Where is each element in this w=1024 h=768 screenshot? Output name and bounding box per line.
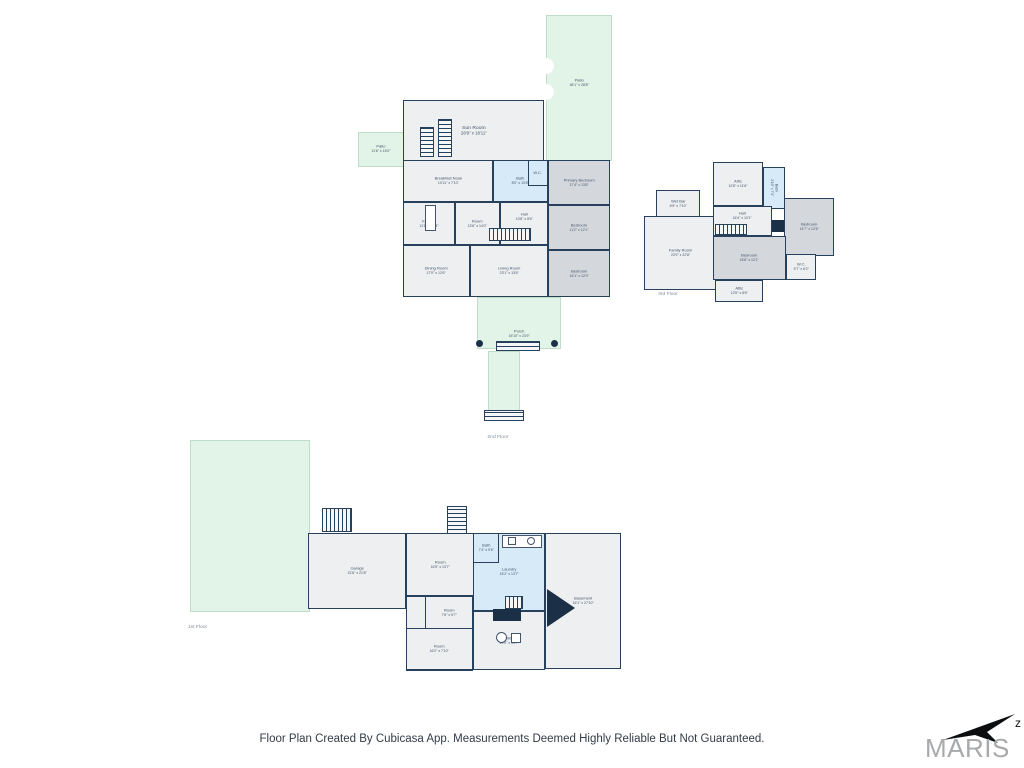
basement-arrow [547, 589, 575, 627]
staircase [420, 127, 434, 157]
room-garage: Garage21'8" x 21'8" [308, 533, 406, 609]
chimney [772, 220, 784, 232]
floor-label-1st: 1st Floor [174, 616, 222, 634]
room-wc-2nd: W.C. [528, 160, 548, 186]
floor-label-3rd: 3rd Floor [644, 283, 692, 301]
porch-column [476, 340, 483, 347]
room-attic-top: Attic12'8" x 11'6" [713, 162, 763, 206]
staircase [489, 228, 531, 241]
room-small-1st: Room7'6" x 5'7" [425, 596, 473, 629]
room-bedroom-right-3rd: Bedroom14'7" x 12'6" [784, 198, 834, 256]
room-bath-3rd: Bath2'10" x 7'4" [763, 167, 785, 209]
staircase [505, 596, 523, 609]
room-wet-bar: Wet Bar6'9" x 7'10" [656, 190, 700, 218]
staircase [438, 119, 452, 157]
floor-label-2nd: 2nd Floor [474, 426, 522, 444]
kitchen-island [425, 205, 436, 231]
washer [508, 537, 516, 545]
room-living: Living Room23'1" x 13'6" [470, 245, 548, 297]
staircase [715, 224, 747, 235]
room-bottom-1st: Room16'2" x 7'10" [406, 628, 473, 670]
maris-logo: z MARIS [925, 710, 1021, 766]
exterior-stairs [322, 508, 352, 532]
room-attic-bottom: Attic12'5" x 8'6" [715, 280, 763, 302]
walkway-area [488, 351, 520, 411]
porch-label: Porch15'10" x 23'9" [477, 326, 561, 342]
disclaimer-text: Floor Plan Created By Cubicasa App. Meas… [0, 733, 1024, 745]
porch-steps [496, 341, 540, 351]
entry-stairs [447, 506, 467, 534]
compass-letter: z [1015, 716, 1021, 730]
furnace [511, 633, 521, 643]
water-heater [496, 632, 507, 643]
room-breakfast-nook: Breakfast Nook10'11" x 7'10" [403, 160, 493, 202]
patio-left-label: Patio11'6" x 16'0" [358, 138, 404, 160]
floor-plan-page: Patio46'1" x 28'8" Patio11'6" x 16'0" Su… [0, 0, 1024, 768]
room-top-1st: Room16'5" x 13'7" [406, 533, 474, 596]
yard-area [190, 440, 310, 612]
room-bedroom-bottom-3rd: Bedroom15'8" x 12'1" [713, 236, 786, 280]
room-bedroom-bottom: Bedroom16'1" x 12'0" [548, 250, 610, 297]
sink [527, 537, 535, 545]
room-bath-1st: Bath7'4" x 5'6" [473, 533, 499, 563]
room-dining: Dining Room17'0" x 12'6" [403, 245, 470, 297]
porch-column [551, 340, 558, 347]
room-wc-3rd: W.C.5'7" x 6'2" [786, 254, 816, 280]
walkway-steps [484, 410, 524, 421]
room-bedroom-mid: Bedroom11'2" x 12'1" [548, 205, 610, 250]
room-family: Family Room23'9" x 22'8" [644, 216, 718, 290]
room-primary-bedroom: Primary Bedroom17'4" x 13'8" [548, 160, 610, 205]
maris-logo-text: MARIS [925, 733, 1010, 764]
patio-right-label: Patio46'1" x 28'8" [546, 72, 612, 94]
stair-landing [493, 609, 521, 621]
